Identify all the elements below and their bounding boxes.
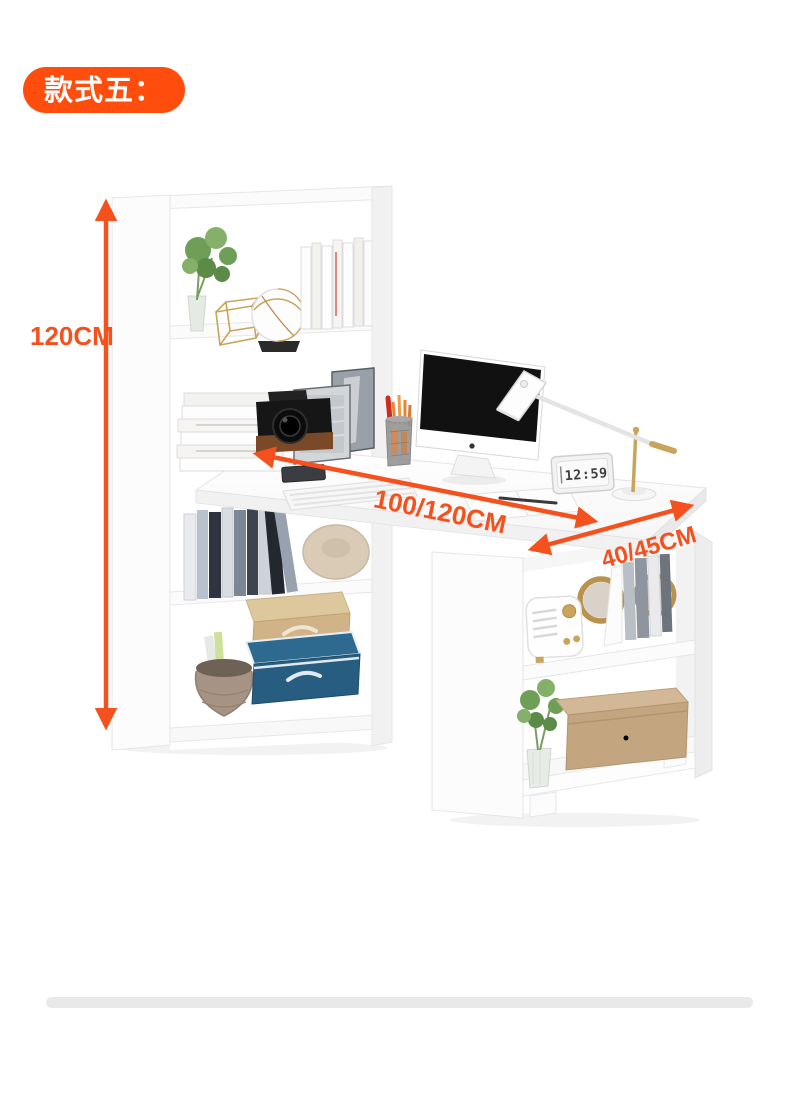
cabinet-foot <box>530 792 556 817</box>
pen-cup <box>386 395 412 466</box>
cabinet-left-panel <box>432 552 523 818</box>
wooden-box <box>556 688 688 770</box>
apple-logo <box>469 443 474 448</box>
product-detail-page: 12:59 <box>0 0 790 1093</box>
vintage-radio <box>525 596 583 664</box>
clock-time: 12:59 <box>564 465 608 484</box>
storage-box-blue <box>246 632 360 704</box>
shelf-books-top <box>301 238 372 329</box>
cabinet-right-panel <box>695 532 712 778</box>
bookshelf-left-panel <box>112 195 170 750</box>
round-basket <box>303 525 369 579</box>
height-dimension-label: 120CM <box>30 321 114 352</box>
bottom-divider <box>46 997 753 1008</box>
shelf-books-row <box>184 500 298 600</box>
flip-clock: 12:59 <box>551 453 614 494</box>
imac-stand <box>451 455 495 478</box>
globe-ornament <box>252 289 304 352</box>
style-badge: 款式五： <box>23 67 185 113</box>
